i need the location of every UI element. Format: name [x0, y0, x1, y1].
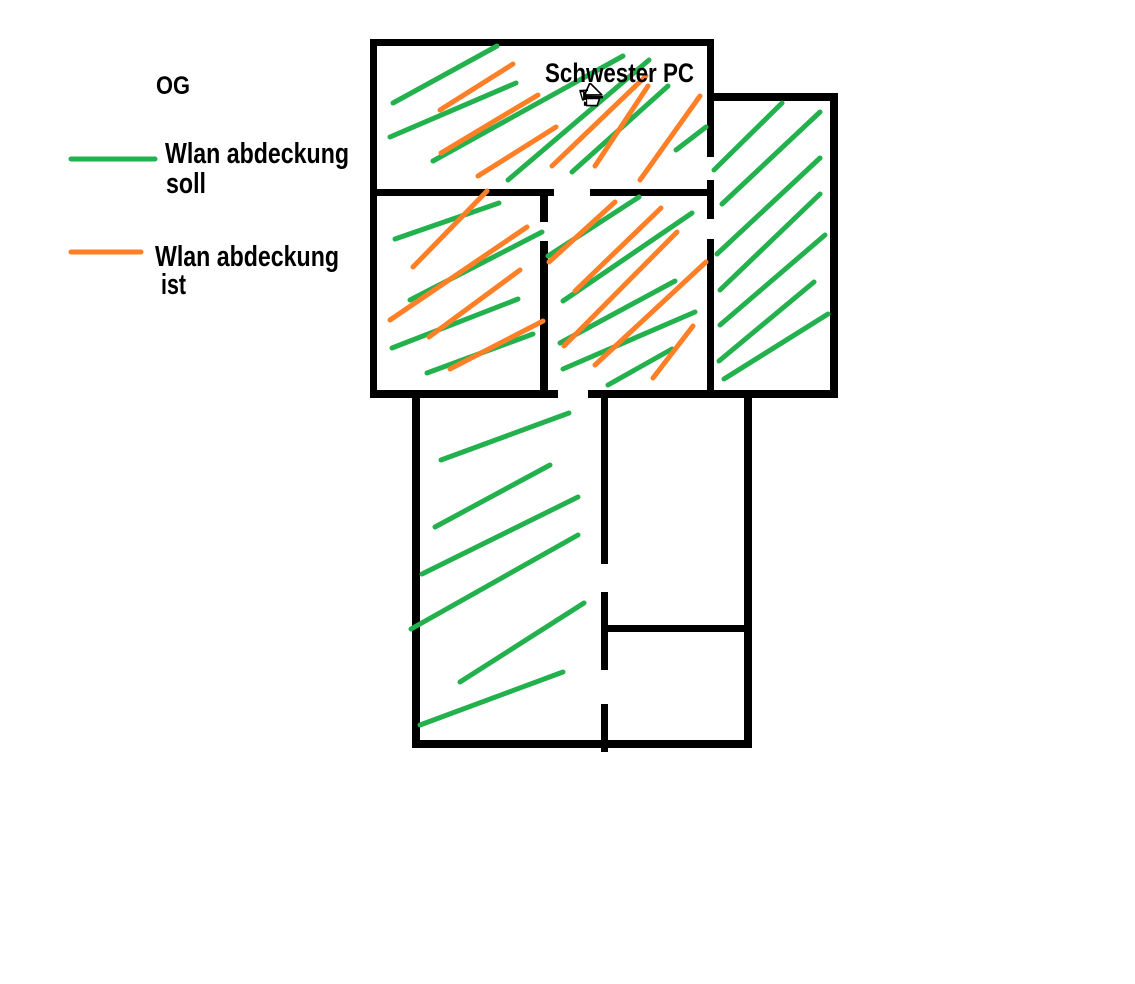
- svg-text:Schwester PC: Schwester PC: [545, 58, 694, 88]
- svg-text:OG: OG: [156, 72, 190, 100]
- svg-text:soll: soll: [166, 168, 206, 200]
- svg-text:ist: ist: [161, 269, 186, 301]
- svg-text:Wlan abdeckung: Wlan abdeckung: [165, 138, 349, 170]
